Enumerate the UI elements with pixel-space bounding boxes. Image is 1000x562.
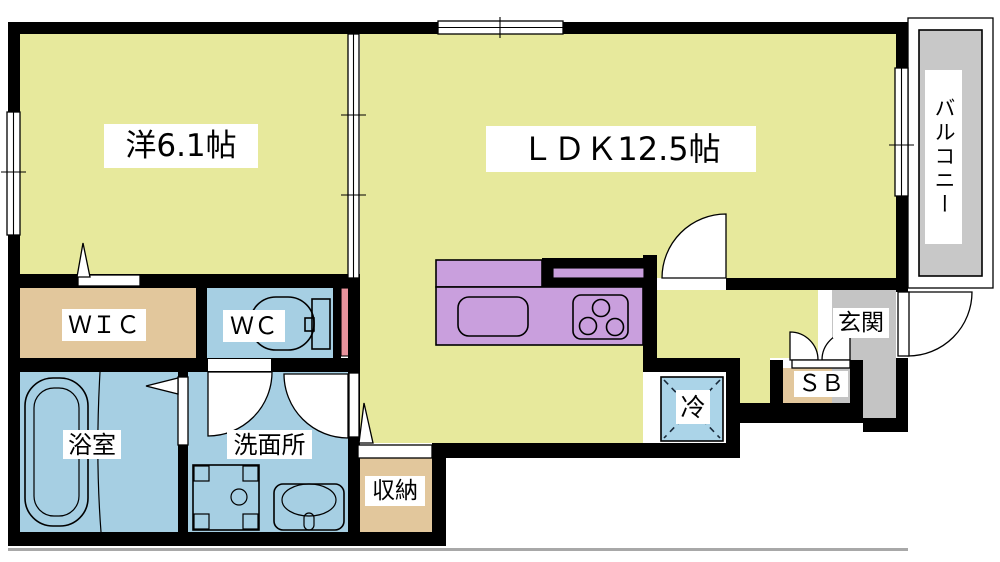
kitchen-upper-cabinet — [436, 260, 542, 287]
wall-segment — [896, 196, 908, 292]
wall-segment — [433, 443, 740, 458]
label-ldk: ＬＤＫ12.5帖 — [486, 126, 756, 172]
label-shoebox: ＳＢ — [794, 371, 848, 397]
wall-segment — [563, 22, 908, 34]
wall-segment — [726, 278, 908, 290]
wall-segment — [770, 360, 783, 408]
label-entrance: 玄関 — [833, 308, 889, 338]
label-balcony: バルコニー — [925, 70, 962, 244]
wall-segment — [8, 358, 360, 372]
label-storage: 収納 — [365, 476, 425, 506]
label-bathroom: 浴室 — [63, 430, 121, 459]
label-wc: ＷＣ — [223, 310, 285, 342]
wall-segment — [863, 418, 908, 432]
label-western-room: 洋6.1帖 — [104, 124, 258, 168]
wall-segment — [8, 274, 360, 288]
wall-segment — [896, 22, 908, 68]
wall-segment — [850, 360, 863, 408]
wall-segment — [8, 22, 20, 112]
label-refrigerator: 冷 — [676, 390, 710, 424]
wall-segment — [8, 532, 446, 546]
kitchen-counter — [436, 260, 644, 345]
label-washroom: 洗面所 — [227, 430, 312, 459]
ground-shadow-line — [8, 548, 908, 551]
wall-segment — [432, 443, 446, 532]
kitchen-hood-stripe — [553, 268, 644, 278]
wall-segment — [740, 403, 863, 423]
room-ldk-corridor-south — [740, 358, 770, 403]
wall-segment — [196, 288, 207, 358]
floor-plan-canvas — [0, 0, 1000, 562]
floor-plan: 洋6.1帖 ＬＤＫ12.5帖 バルコニー ＷＩＣ ＷＣ 浴室 洗面所 収納 冷 … — [0, 0, 1000, 562]
label-wic: ＷＩＣ — [62, 309, 146, 341]
wall-segment — [333, 288, 341, 358]
door-swing-icon-entrance — [898, 292, 972, 356]
wall-segment — [8, 22, 438, 34]
pipe-space-strip — [341, 288, 349, 356]
wall-segment — [643, 358, 740, 372]
